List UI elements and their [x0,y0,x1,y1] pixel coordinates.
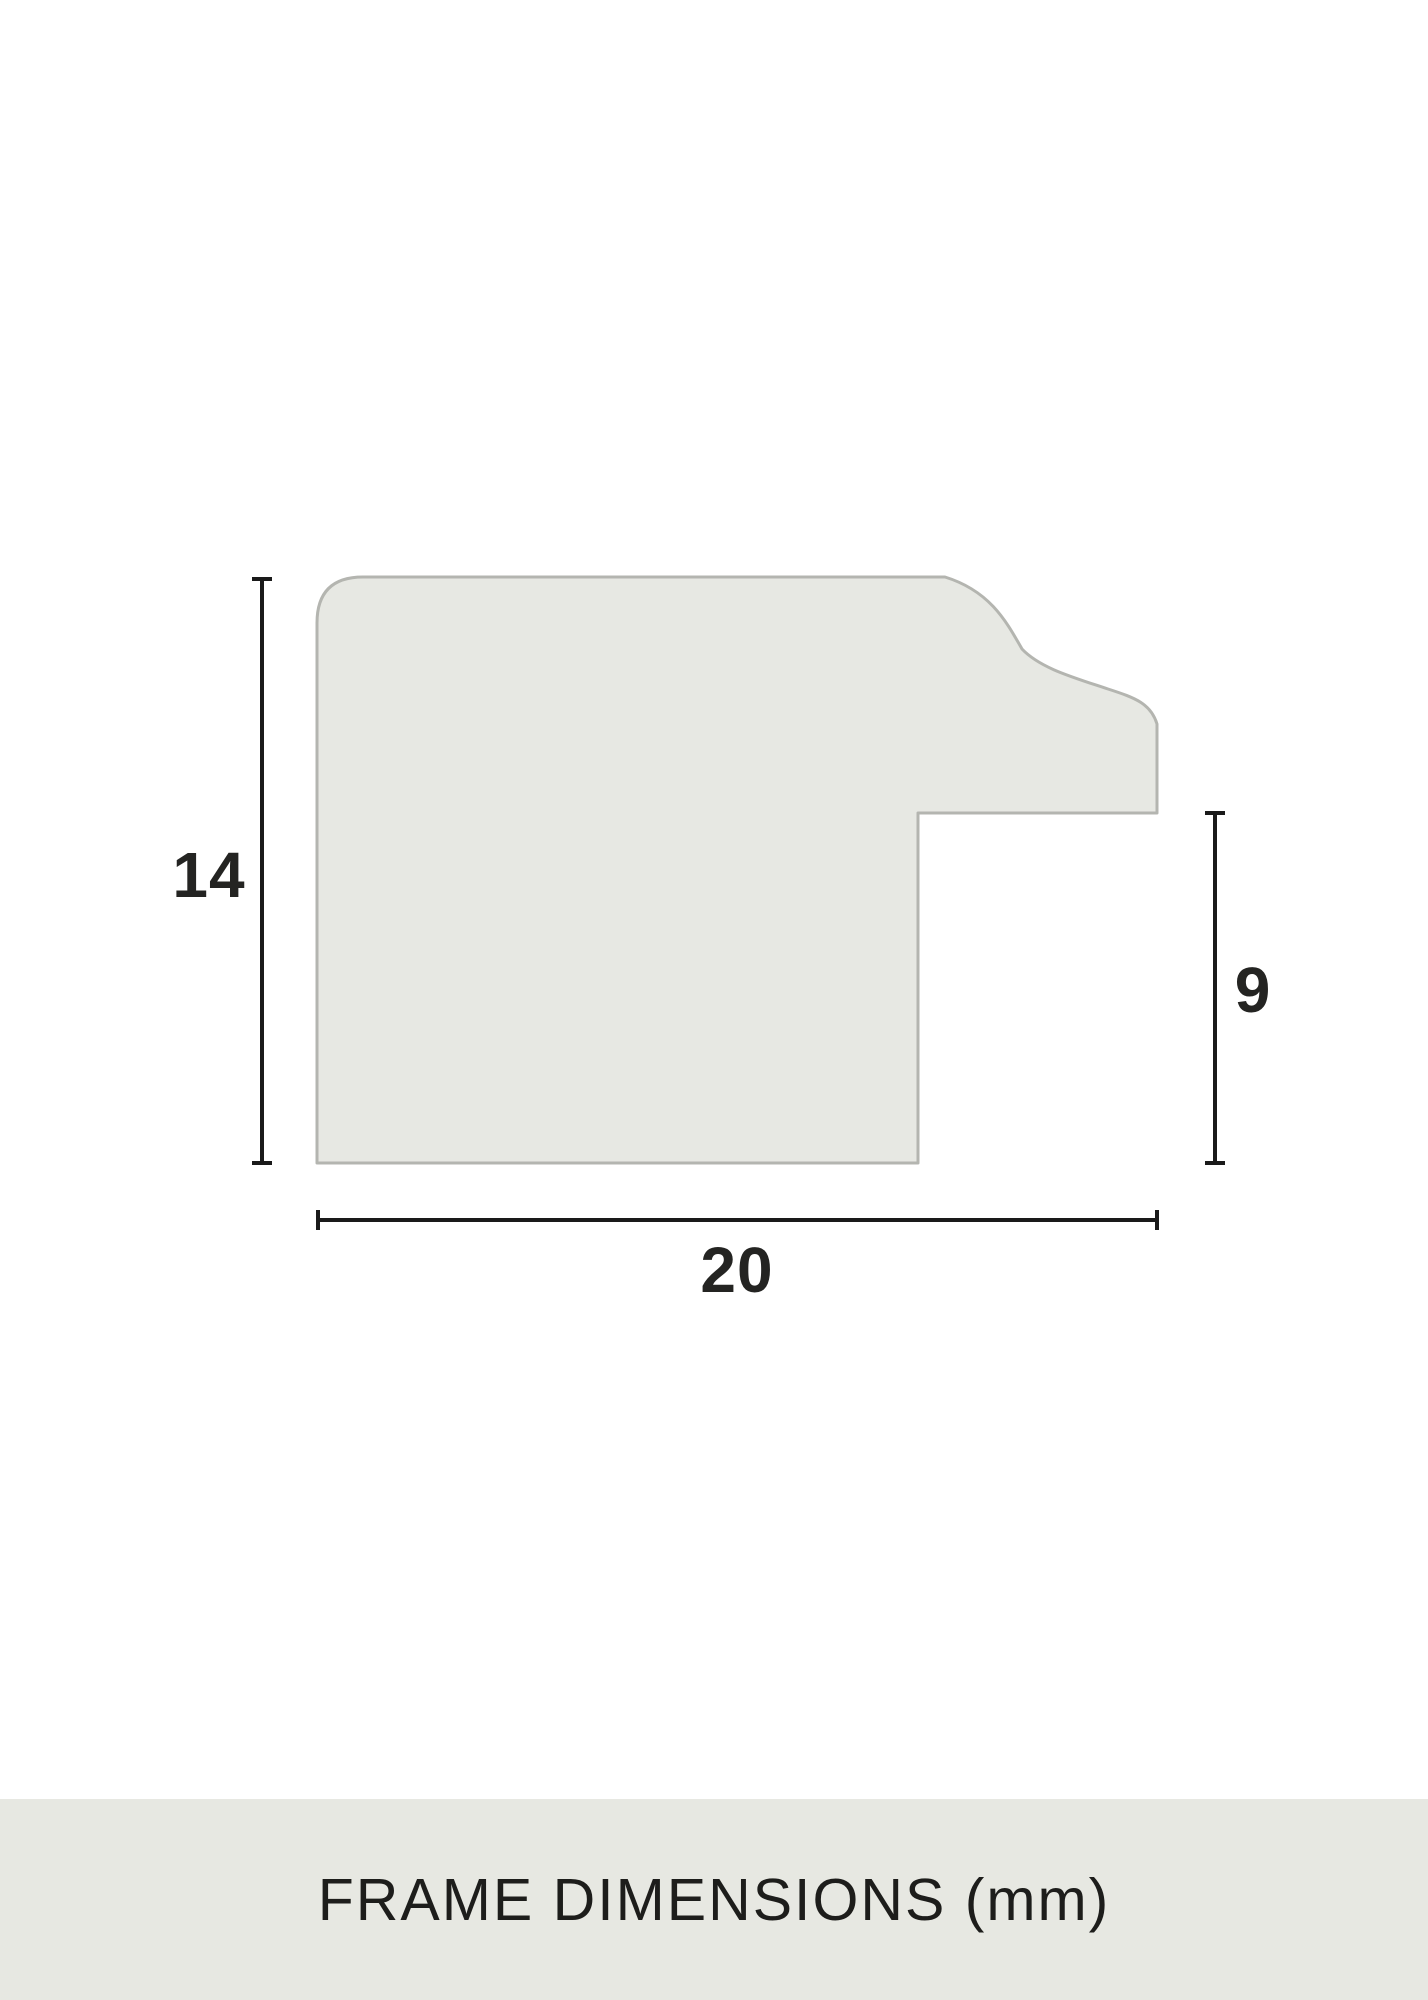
rebate-dimension-label: 9 [1235,958,1272,1022]
caption-banner: FRAME DIMENSIONS (mm) [0,1799,1428,2000]
caption-text: FRAME DIMENSIONS (mm) [318,1866,1111,1934]
cross-section-drawing [0,0,1428,2000]
height-dimension-label: 14 [172,843,245,907]
width-dimension-line [318,1210,1157,1230]
rebate-dimension-line [1205,813,1225,1163]
height-dimension-line [252,579,272,1163]
width-dimension-label: 20 [700,1238,773,1302]
frame-dimensions-diagram: 14 20 9 FRAME DIMENSIONS (mm) [0,0,1428,2000]
moulding-profile-shape [317,577,1157,1163]
